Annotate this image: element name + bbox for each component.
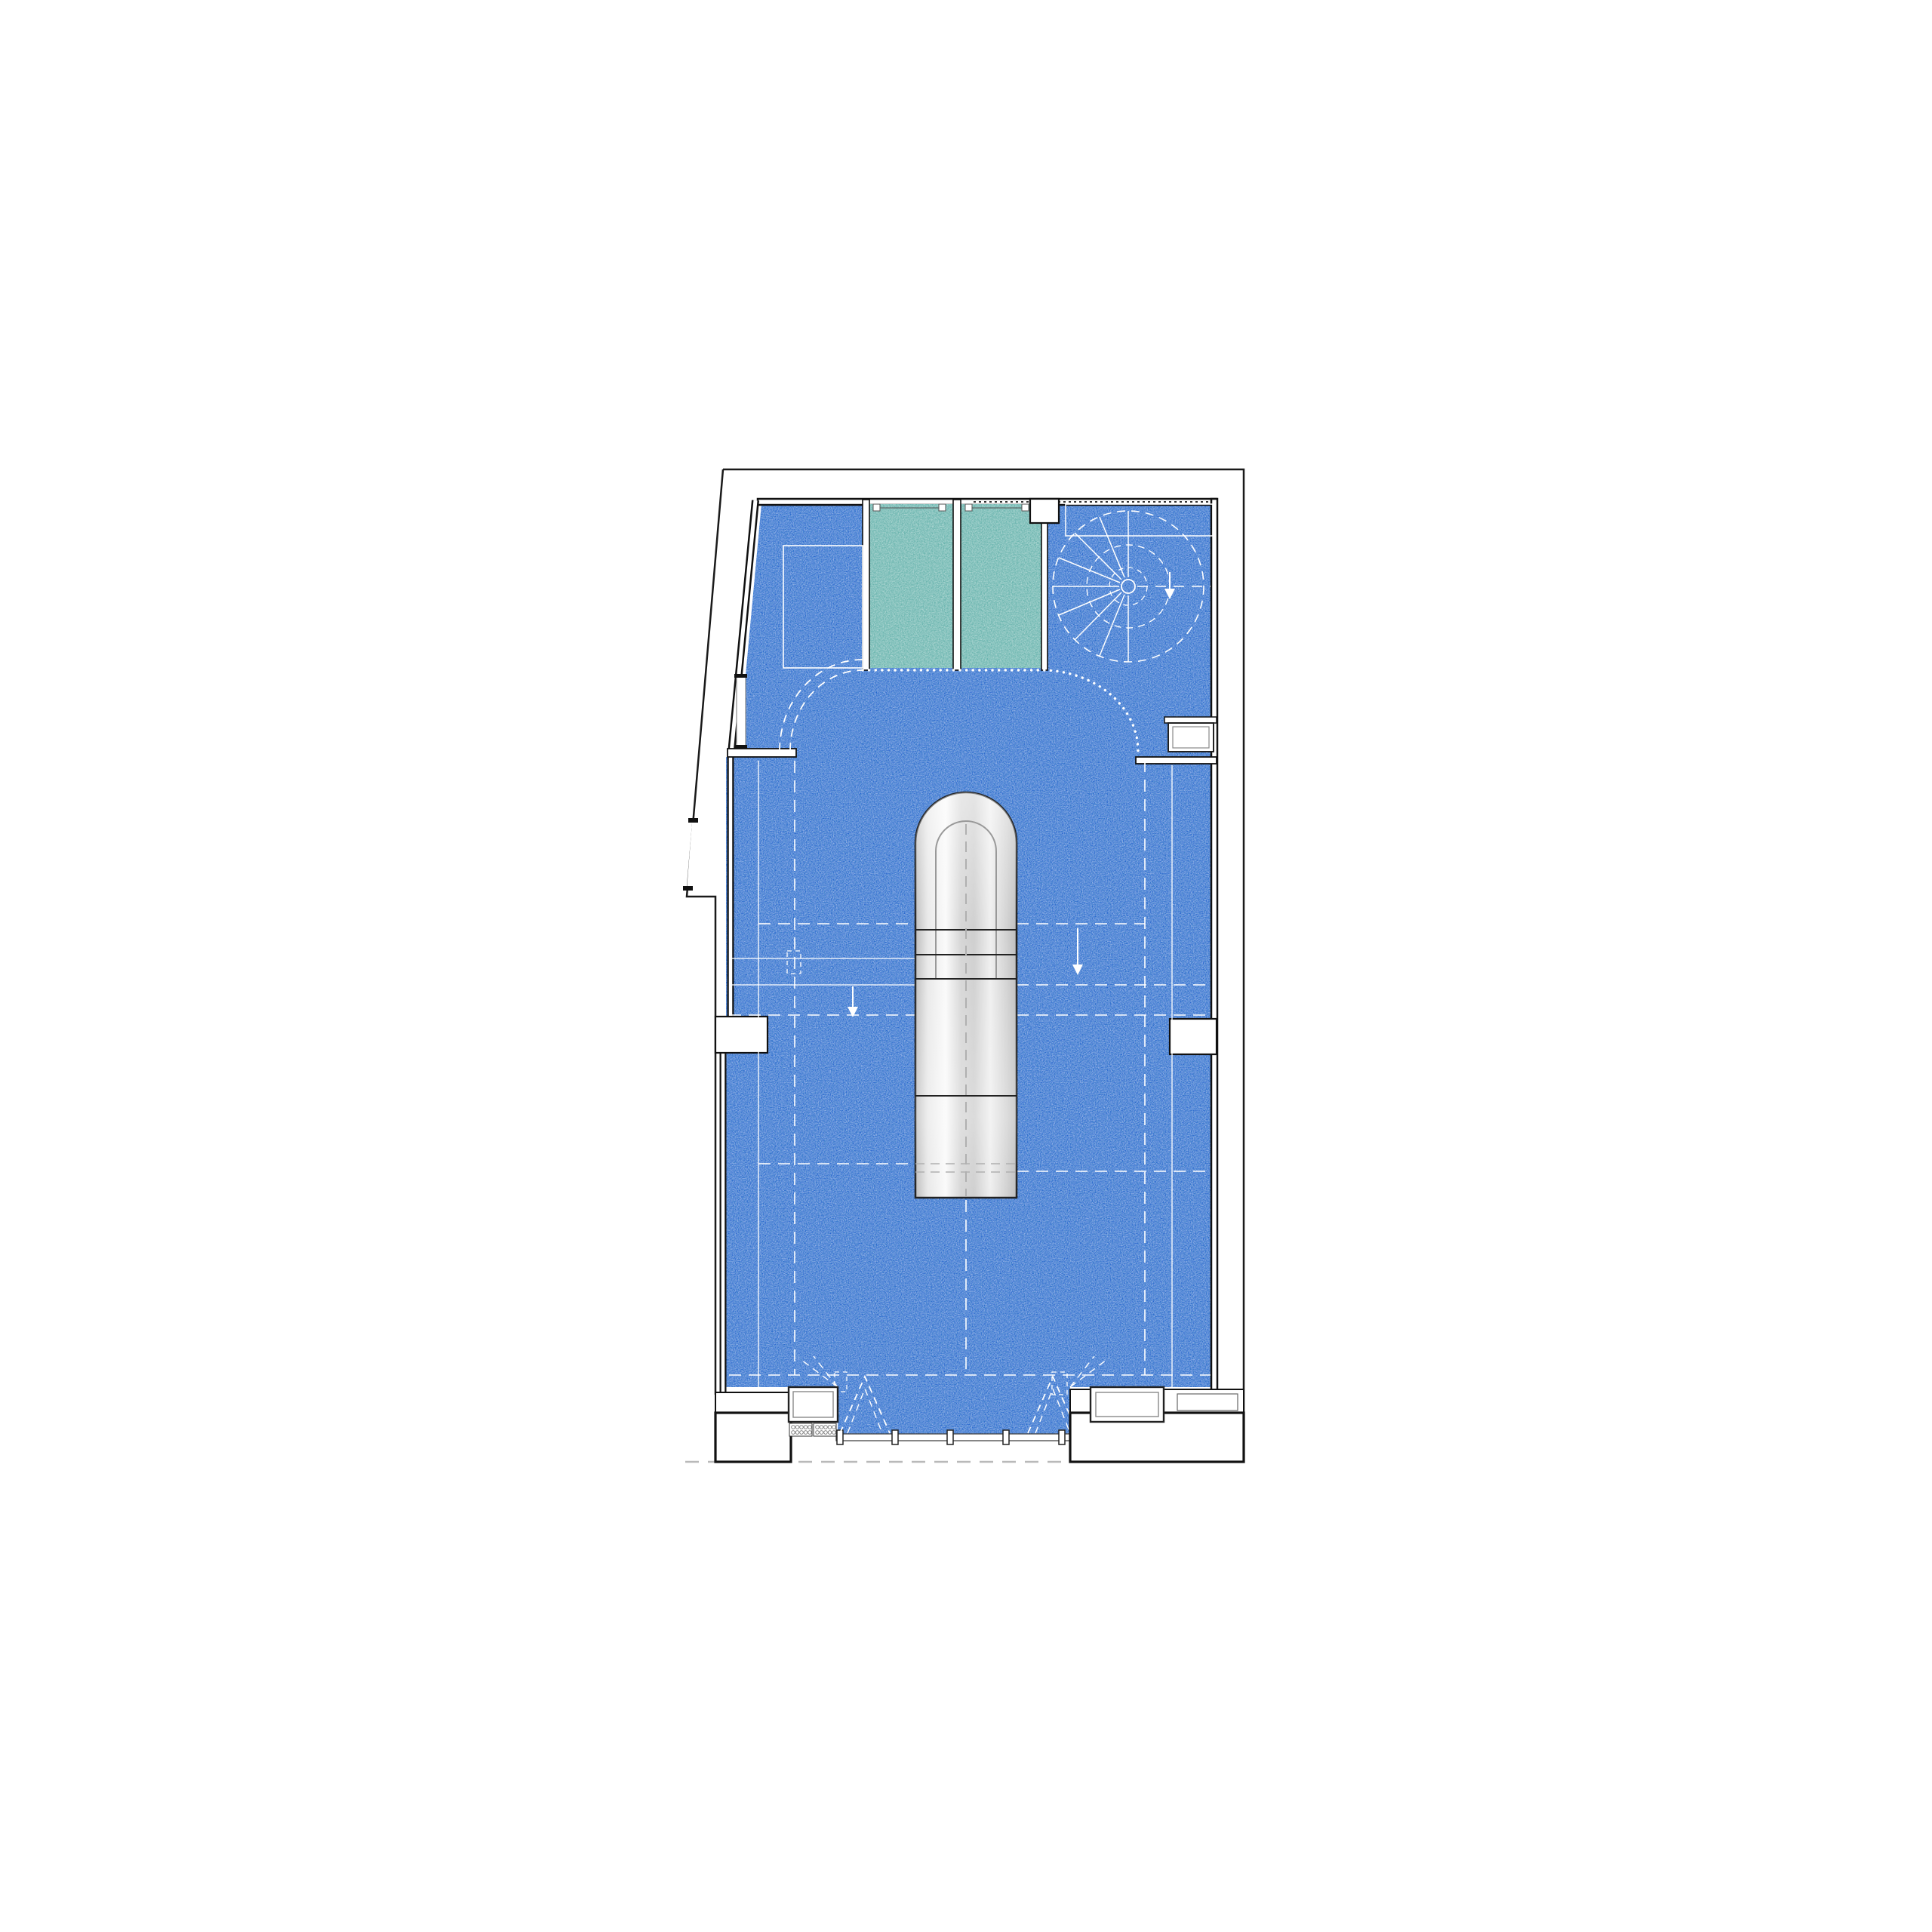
left-wall-niche: [715, 1017, 768, 1053]
floor-plan-drawing: [0, 0, 1932, 1932]
left-corner-wall-band: [715, 1392, 791, 1413]
right-wall-return: [1136, 757, 1217, 764]
left-corner-pier: [715, 1413, 791, 1462]
right-wall-display-box: [1164, 717, 1217, 752]
fitting-room-wall-mid: [953, 500, 961, 670]
right-wall-niche: [1170, 1019, 1217, 1054]
fitting-room-wall-right: [1041, 500, 1048, 670]
right-corner-inset: [1177, 1394, 1238, 1411]
bottom-right-corner: [1070, 1387, 1244, 1462]
floor-plan-page: [0, 0, 1932, 1932]
top-wall-recess-overlay: [1030, 499, 1059, 523]
left-wall-window: [734, 674, 747, 749]
central-stair-capsule: [915, 792, 1017, 1198]
right-display-case: [1091, 1387, 1164, 1422]
fitting-room-wall-left: [863, 500, 869, 670]
fitting-room-1: [869, 504, 953, 668]
right-wall: [1211, 499, 1217, 1390]
fitting-room-2: [961, 504, 1041, 668]
left-wall-jog: [728, 749, 796, 757]
fitting-rooms: [863, 499, 1059, 670]
left-display-case: [789, 1387, 838, 1422]
